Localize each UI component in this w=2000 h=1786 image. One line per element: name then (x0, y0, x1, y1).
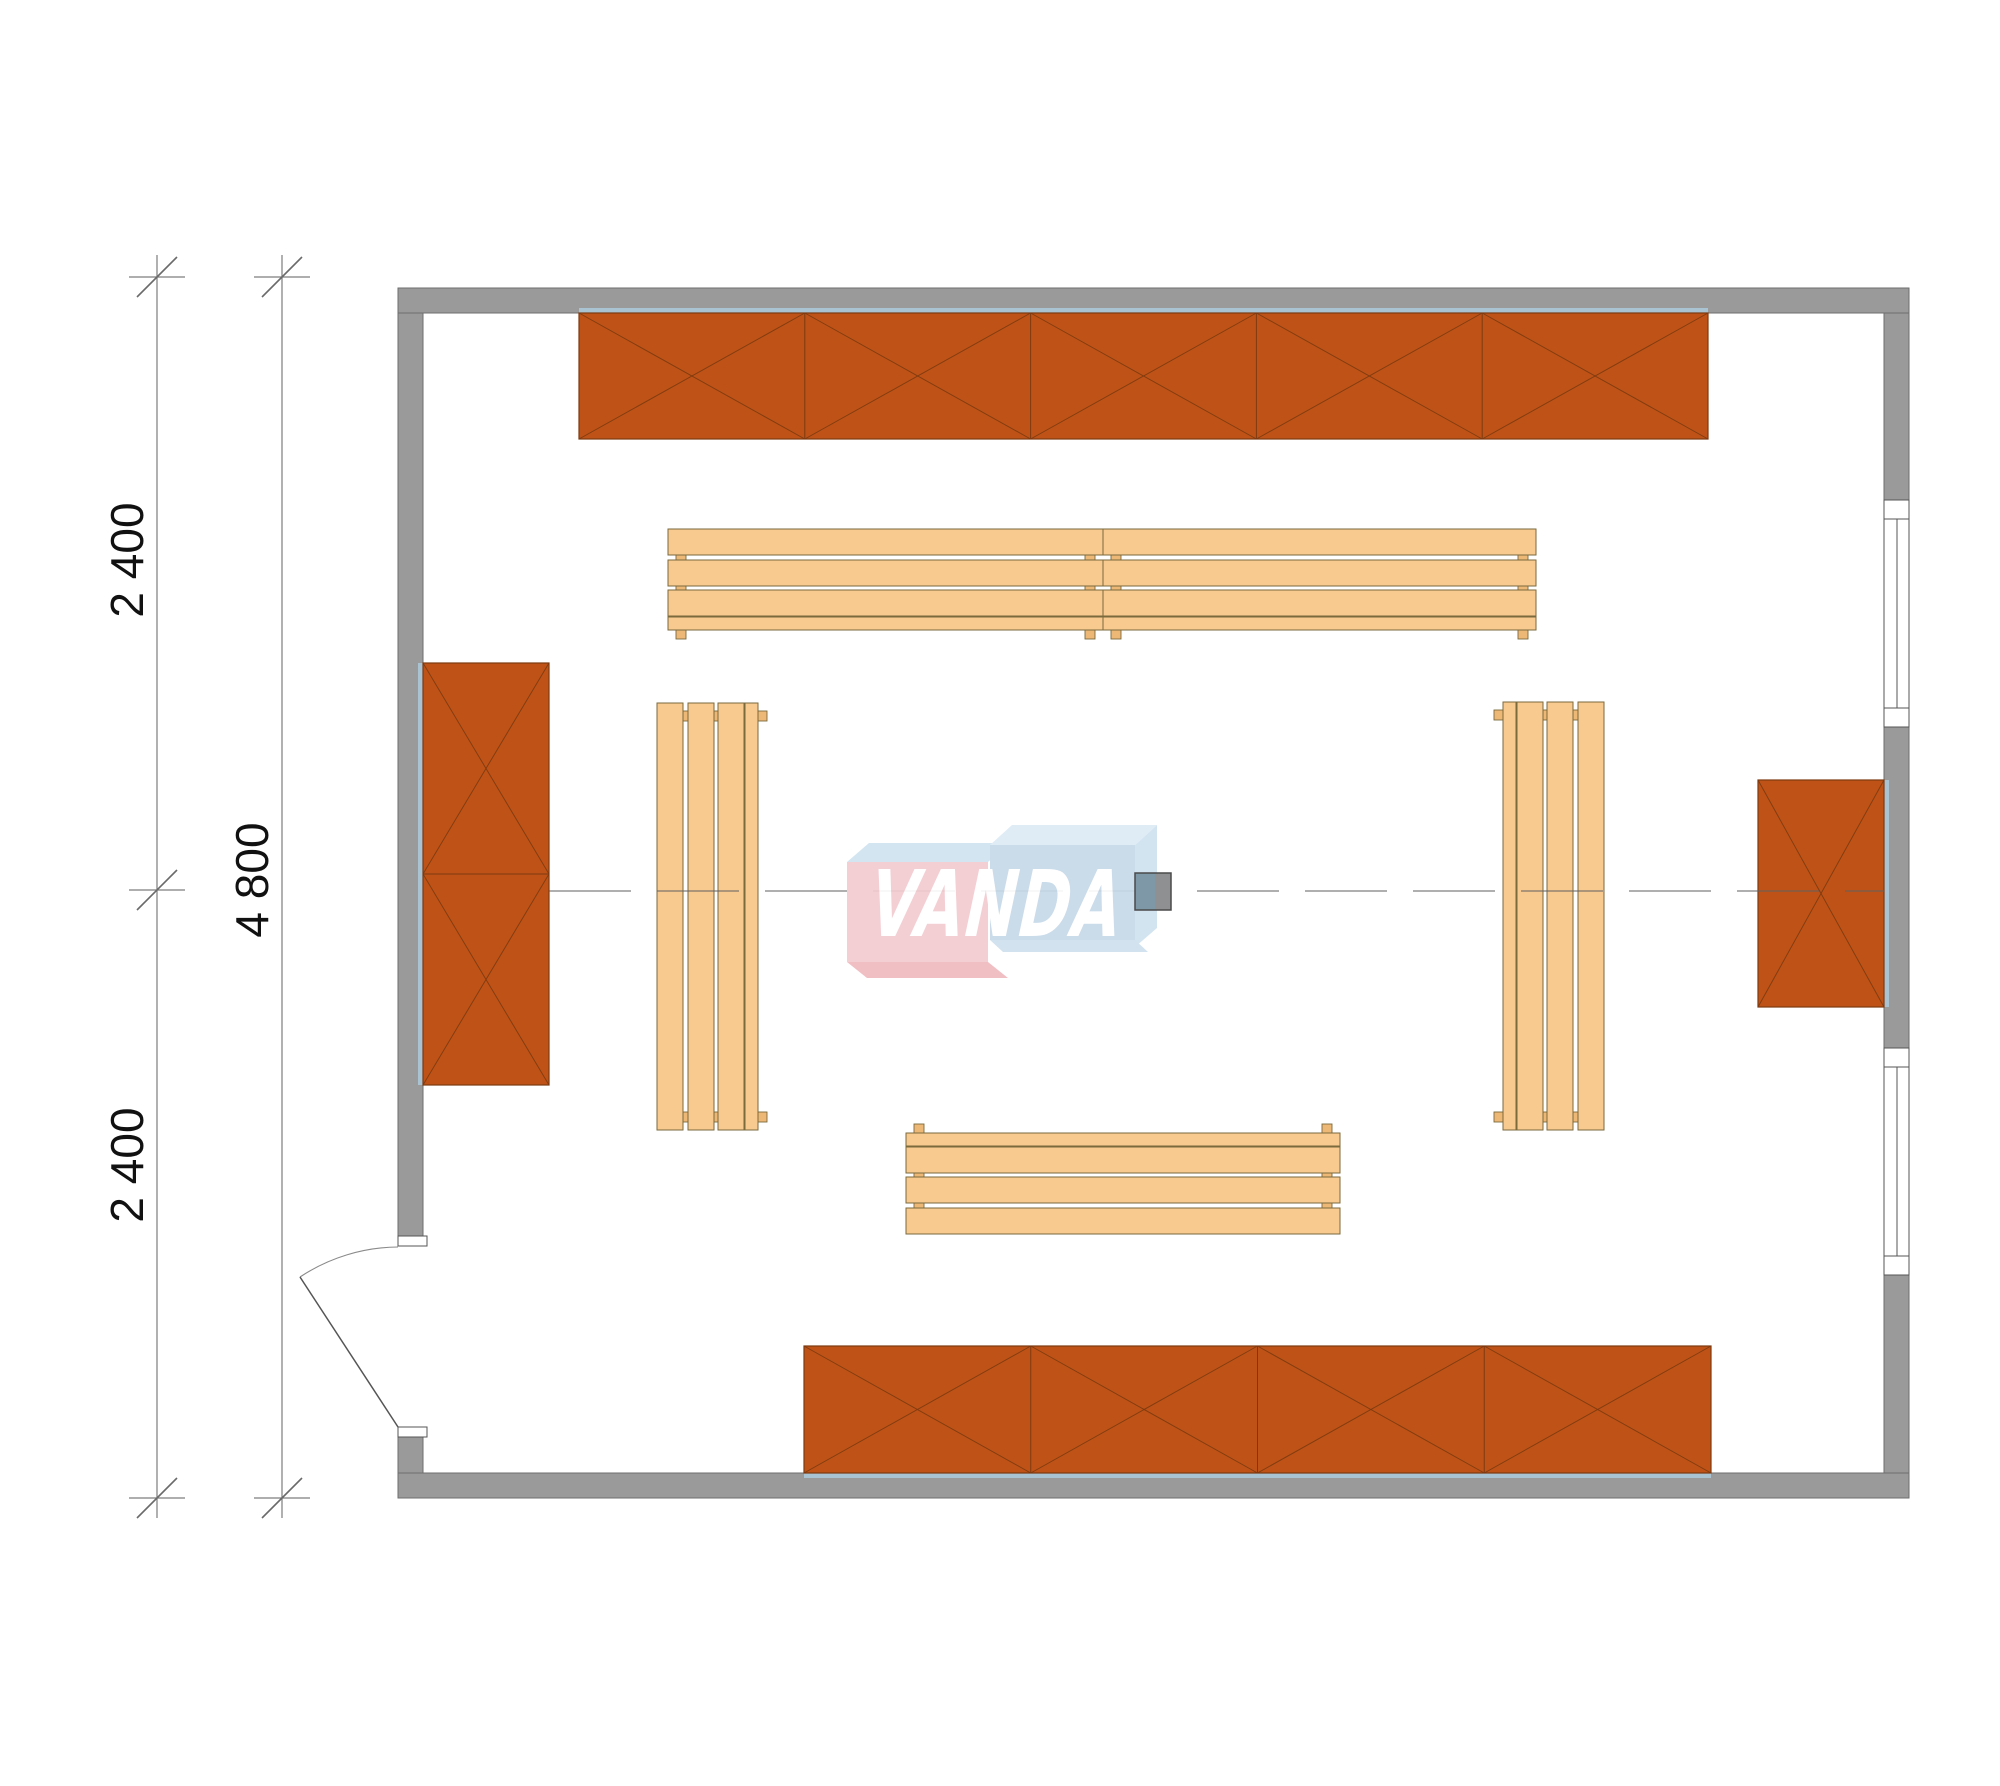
dim-label-top-segment: 2 400 (101, 502, 153, 617)
logo-pink-shadow (847, 962, 1008, 978)
stove-left-half (1135, 873, 1155, 910)
bench-right (1494, 702, 1604, 1130)
floor-plan-canvas: 2 400 2 400 4 800 (0, 0, 2000, 1786)
dim-label-bottom-segment: 2 400 (101, 1107, 153, 1222)
cabinet-right-wall (1758, 780, 1889, 1007)
cabinet-row-bottom-wall (804, 1346, 1711, 1478)
door-leaf (300, 1277, 398, 1427)
bench-top-right (1103, 529, 1536, 639)
cabinet-left-wall (418, 663, 549, 1085)
vanda-watermark: VANDA (847, 825, 1157, 978)
wall-right-lower (1884, 1275, 1909, 1473)
door (300, 1236, 427, 1437)
door-jamb-top (398, 1236, 427, 1246)
window-lower (1884, 1048, 1909, 1275)
door-swing-arc (300, 1247, 398, 1277)
stove-right-half (1155, 873, 1171, 910)
door-jamb-bottom (398, 1427, 427, 1437)
dimension-lines: 2 400 2 400 4 800 (101, 255, 310, 1518)
logo-text: VANDA (859, 851, 1134, 958)
cabinet-row-top-wall (579, 308, 1708, 439)
stove-symbol (1135, 873, 1171, 910)
dim-label-total: 4 800 (226, 822, 278, 937)
logo-blue-top-bevel (990, 825, 1157, 845)
bench-bottom (906, 1124, 1340, 1234)
wall-left-stub (398, 1437, 423, 1473)
bench-left (657, 703, 767, 1130)
window-upper (1884, 500, 1909, 727)
bench-top-left (668, 529, 1103, 639)
wall-right-upper (1884, 313, 1909, 500)
